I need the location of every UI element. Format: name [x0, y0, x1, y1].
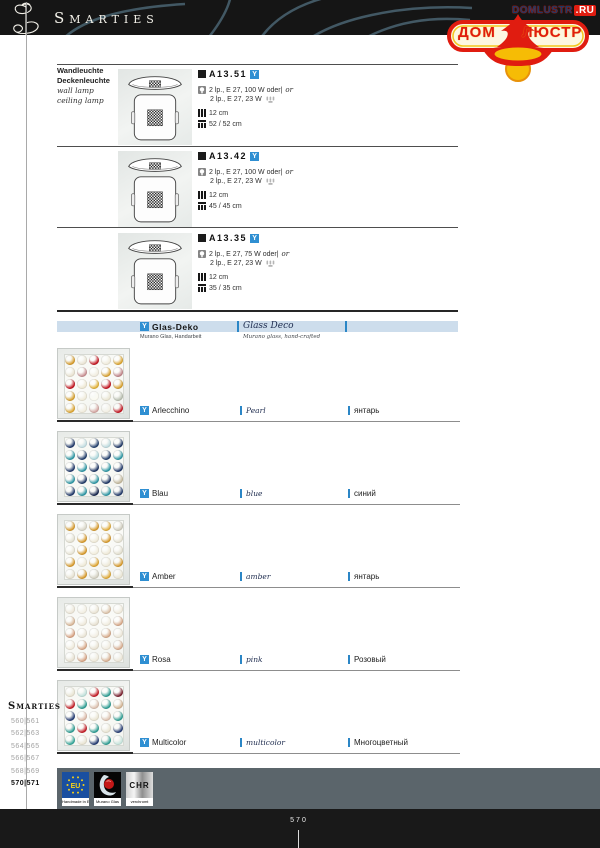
swatch-name-de: Multicolor [152, 738, 186, 747]
glass-dot [65, 545, 75, 555]
glass-dot [113, 735, 123, 745]
glass-dot [65, 687, 75, 697]
height-icon [198, 191, 206, 199]
variant-badge: Y [250, 152, 259, 161]
dot-grid [65, 687, 123, 745]
height-icon [198, 273, 206, 281]
glass-dot [89, 403, 99, 413]
glass-dot [65, 569, 75, 579]
swatch-name-de: Rosa [152, 655, 171, 664]
divider [348, 489, 350, 498]
glass-swatch-image [57, 597, 130, 668]
energy-saver-icon [265, 260, 276, 267]
height-value: 12 cm [209, 274, 228, 281]
glass-dot [89, 521, 99, 531]
cert-chrome: CHR verchromt [126, 772, 153, 806]
glass-plate [64, 520, 124, 580]
lamp-diagram-icon [124, 235, 186, 307]
glass-dot [101, 640, 111, 650]
glass-dot [113, 723, 123, 733]
glass-dot [101, 462, 111, 472]
divider [57, 752, 133, 754]
glass-dot [77, 403, 87, 413]
glass-dot [77, 450, 87, 460]
dot-grid [65, 521, 123, 579]
glass-dot [65, 379, 75, 389]
eu-flag-icon: EU [62, 772, 89, 798]
glass-plate [64, 437, 124, 497]
glass-dot [89, 557, 99, 567]
index-title: Smarties [8, 701, 61, 712]
glass-dot [77, 616, 87, 626]
glass-dot [101, 391, 111, 401]
glass-dot [113, 367, 123, 377]
svg-text:EU: EU [71, 783, 81, 790]
swatch-name-en: multicolor [246, 738, 285, 747]
glass-section-title-en: Glass Deco [243, 321, 294, 331]
bulb-icon [198, 168, 206, 176]
glass-swatch-image [57, 514, 130, 585]
index-page-pair: 564|565 [8, 743, 61, 750]
height-value: 12 cm [209, 110, 228, 117]
glass-dot [101, 569, 111, 579]
lamp-spec-2: 2 lp., E 27, 23 W [210, 178, 262, 185]
category-de-1: Wandleuchte [57, 66, 117, 76]
glass-dot [77, 711, 87, 721]
glass-dot [77, 521, 87, 531]
glass-dot [77, 640, 87, 650]
glass-dot [89, 711, 99, 721]
page-title: Smarties [54, 9, 159, 27]
divider [345, 321, 347, 332]
variant-badge: Y [140, 489, 149, 498]
index-page-pair: 560|561 [8, 718, 61, 725]
glass-dot [101, 545, 111, 555]
glass-dot [113, 699, 123, 709]
swatch-name-ru: янтарь [354, 406, 379, 415]
glass-dot [101, 355, 111, 365]
energy-saver-icon [265, 96, 276, 103]
lamp-diagram-icon [124, 153, 186, 225]
category-en-1: wall lamp [57, 86, 117, 96]
variant-badge: Y [250, 234, 259, 243]
variant-badge: Y [250, 70, 259, 79]
divider [57, 64, 458, 65]
glass-dot [113, 652, 123, 662]
glass-dot [101, 450, 111, 460]
glass-dot [101, 699, 111, 709]
glass-dot [101, 687, 111, 697]
glass-dot [101, 652, 111, 662]
swatch-name-de: Arlecchino [152, 406, 189, 415]
glass-dot [101, 403, 111, 413]
page-number: 570 [283, 817, 315, 824]
dot-grid [65, 438, 123, 496]
glass-dot [77, 486, 87, 496]
swatch-name-ru: синий [354, 489, 376, 498]
size-value: 45 / 45 cm [209, 203, 242, 210]
glass-dot [113, 711, 123, 721]
product-image [118, 151, 192, 227]
divider [133, 587, 460, 588]
divider [348, 572, 350, 581]
divider [57, 146, 458, 147]
catalog-page: Smarties DOMLUSTR.RU ДОМ ЛЮСТР Wandleuch… [0, 0, 600, 848]
watermark-word-dom: ДОМ [458, 24, 496, 41]
index-page-pair: 562|563 [8, 730, 61, 737]
glass-dot [77, 474, 87, 484]
glass-dot [101, 628, 111, 638]
glass-swatch-image [57, 680, 130, 751]
cert-label: Handmade in EU [62, 798, 89, 806]
cert-eu: EU Handmade in EU [62, 772, 89, 806]
glass-dot [89, 379, 99, 389]
glass-dot [113, 687, 123, 697]
domlustr-watermark[interactable]: DOMLUSTR.RU ДОМ ЛЮСТР [440, 0, 600, 86]
category-label: Wandleuchte Deckenleuchte wall lamp ceil… [57, 66, 117, 106]
swatch-row: YRosa pink Розовый [0, 597, 600, 680]
glass-dot [65, 486, 75, 496]
glass-dot [101, 521, 111, 531]
cert-label: Murano Glas [94, 798, 121, 806]
glass-dot [77, 545, 87, 555]
glass-dot [65, 403, 75, 413]
glass-dot [89, 604, 99, 614]
variant-badge: Y [140, 406, 149, 415]
glass-dot [77, 628, 87, 638]
divider [240, 655, 242, 664]
swatch-name-de: Blau [152, 489, 168, 498]
index-page-pair: 566|567 [8, 755, 61, 762]
product-code: A13.42 [209, 151, 247, 161]
glass-swatch-image [57, 431, 130, 502]
glass-dot [113, 486, 123, 496]
glass-dot [113, 616, 123, 626]
glass-dot [113, 640, 123, 650]
glass-dot [89, 438, 99, 448]
glass-dot [89, 355, 99, 365]
glass-dot [113, 403, 123, 413]
index-page-pair: 568|569 [8, 768, 61, 775]
lamp-spec-2: 2 lp., E 27, 23 W [210, 96, 262, 103]
article-icon [198, 152, 206, 160]
glass-dot [113, 355, 123, 365]
glass-dot [101, 474, 111, 484]
glass-dot [89, 628, 99, 638]
glass-dot [113, 462, 123, 472]
divider [133, 670, 460, 671]
glass-dot [77, 462, 87, 472]
swatch-name-ru: янтарь [354, 572, 379, 581]
glass-dot [77, 604, 87, 614]
glass-dot [77, 379, 87, 389]
glass-plate [64, 686, 124, 746]
page-index: Smarties 560|561 562|563 564|565 566|567… [8, 701, 61, 787]
glass-dot [77, 569, 87, 579]
glass-dot [101, 557, 111, 567]
category-de-2: Deckenleuchte [57, 76, 117, 86]
swatch-name-en: blue [246, 489, 262, 498]
glass-section-title-de: Glas-Deko [152, 322, 199, 332]
glass-dot [65, 652, 75, 662]
footer-bar: 570 [0, 809, 600, 848]
glass-section-sub-en: Murano glass, hand-crafted [243, 334, 320, 340]
glass-dot [113, 474, 123, 484]
divider [133, 753, 460, 754]
variant-badge: Y [140, 572, 149, 581]
glass-dot [89, 462, 99, 472]
glass-dot [89, 474, 99, 484]
index-page-pair-current: 570|571 [8, 780, 61, 787]
glass-dot [89, 723, 99, 733]
glass-dot [89, 486, 99, 496]
divider [348, 738, 350, 747]
swatch-name-en: amber [246, 572, 270, 581]
glass-dot [101, 604, 111, 614]
lamp-spec-2: 2 lp., E 27, 23 W [210, 260, 262, 267]
glass-dot [113, 628, 123, 638]
divider [57, 503, 133, 505]
article-icon [198, 70, 206, 78]
glass-dot [77, 367, 87, 377]
glass-dot [65, 367, 75, 377]
category-en-2: ceiling lamp [57, 96, 117, 106]
divider [133, 421, 460, 422]
glass-dot [89, 533, 99, 543]
swatch-row: YMulticolor multicolor Многоцветный [0, 680, 600, 763]
or-label: or [285, 86, 293, 94]
product-image [118, 233, 192, 309]
size-value: 52 / 52 cm [209, 121, 242, 128]
divider [57, 669, 133, 671]
glass-dot [89, 391, 99, 401]
lamp-spec-1: 2 lp., E 27, 75 W oder| [209, 251, 279, 258]
divider [240, 489, 242, 498]
glass-dot [65, 711, 75, 721]
glass-dot [89, 569, 99, 579]
bulb-icon [198, 250, 206, 258]
page-number-tick [298, 830, 299, 848]
or-label: or [285, 168, 293, 176]
glass-dot [65, 355, 75, 365]
swatch-name-en: Pearl [246, 406, 266, 415]
glass-dot [65, 533, 75, 543]
glass-dot [65, 723, 75, 733]
glass-dot [101, 438, 111, 448]
glass-dot [113, 391, 123, 401]
glass-dot [77, 438, 87, 448]
glass-dot [89, 545, 99, 555]
or-label: or [282, 250, 290, 258]
swatch-name-ru: Розовый [354, 655, 386, 664]
glass-dot [101, 616, 111, 626]
glass-dot [65, 616, 75, 626]
divider [57, 227, 458, 228]
glass-dot [89, 687, 99, 697]
glass-dot [101, 735, 111, 745]
swatch-row: YAmber amber янтарь [0, 514, 600, 597]
glass-dot [89, 367, 99, 377]
glass-dot [113, 545, 123, 555]
glass-dot [65, 391, 75, 401]
height-value: 12 cm [209, 192, 228, 199]
glass-dot [113, 379, 123, 389]
glass-dot [65, 604, 75, 614]
divider [240, 572, 242, 581]
glass-dot [65, 628, 75, 638]
glass-dot [77, 687, 87, 697]
swatch-row: YArlecchino Pearl янтарь [0, 348, 600, 431]
glass-dot [89, 652, 99, 662]
divider [348, 655, 350, 664]
product-image [118, 69, 192, 145]
divider [57, 420, 133, 422]
glass-dot [65, 735, 75, 745]
glass-dot [77, 723, 87, 733]
bulb-icon [198, 86, 206, 94]
glass-dot [113, 521, 123, 531]
glass-dot [113, 438, 123, 448]
swatch-row: YBlau blue синий [0, 431, 600, 514]
glass-dot [101, 533, 111, 543]
lamp-spec-1: 2 lp., E 27, 100 W oder| [209, 169, 282, 176]
divider [57, 586, 133, 588]
glass-dot [77, 735, 87, 745]
glass-dot [89, 735, 99, 745]
cert-murano: Murano Glas [94, 772, 121, 806]
glass-dot [113, 557, 123, 567]
size-icon [198, 202, 206, 210]
glass-dot [89, 640, 99, 650]
glass-dot [77, 391, 87, 401]
swatch-name-en: pink [246, 655, 263, 664]
glass-dot [101, 367, 111, 377]
glass-dot [77, 699, 87, 709]
glass-dot [65, 438, 75, 448]
glass-dot [65, 699, 75, 709]
glass-dot [89, 450, 99, 460]
glass-dot [65, 450, 75, 460]
watermark-word-lustr: ЛЮСТР [522, 24, 582, 41]
glass-section-sub-de: Murano Glas, Handarbeit [140, 334, 201, 340]
glass-dot [113, 450, 123, 460]
size-icon [198, 284, 206, 292]
divider [133, 504, 460, 505]
variant-badge: Y [140, 655, 149, 664]
dot-grid [65, 355, 123, 413]
glass-dot [101, 486, 111, 496]
lamp-spec-1: 2 lp., E 27, 100 W oder| [209, 87, 282, 94]
glass-dot [113, 604, 123, 614]
divider [240, 738, 242, 747]
divider [57, 310, 458, 312]
glass-dot [101, 379, 111, 389]
variant-badge: Y [140, 738, 149, 747]
glass-dot [77, 557, 87, 567]
glass-dot [77, 533, 87, 543]
chrome-icon: CHR [126, 772, 153, 798]
glass-plate [64, 354, 124, 414]
glass-dot [113, 533, 123, 543]
article-icon [198, 234, 206, 242]
glass-dot [65, 462, 75, 472]
glass-dot [77, 652, 87, 662]
lamp-diagram-icon [124, 71, 186, 143]
product-code: A13.35 [209, 233, 247, 243]
glass-dot [89, 616, 99, 626]
size-value: 35 / 35 cm [209, 285, 242, 292]
variant-badge: Y [140, 322, 149, 331]
divider [237, 321, 239, 332]
swatch-name-de: Amber [152, 572, 176, 581]
murano-glass-icon [94, 772, 121, 798]
energy-saver-icon [265, 178, 276, 185]
divider [240, 406, 242, 415]
swatch-name-ru: Многоцветный [354, 738, 408, 747]
product-code: A13.51 [209, 69, 247, 79]
glass-dot [65, 640, 75, 650]
glass-swatch-image [57, 348, 130, 419]
glass-dot [101, 723, 111, 733]
glass-dot [77, 355, 87, 365]
dot-grid [65, 604, 123, 662]
glass-plate [64, 603, 124, 663]
glass-dot [101, 711, 111, 721]
glass-dot [89, 699, 99, 709]
height-icon [198, 109, 206, 117]
size-icon [198, 120, 206, 128]
cert-label: verchromt [126, 798, 153, 806]
glass-dot [113, 569, 123, 579]
glass-dot [65, 557, 75, 567]
divider [348, 406, 350, 415]
glass-dot [65, 521, 75, 531]
glass-dot [65, 474, 75, 484]
